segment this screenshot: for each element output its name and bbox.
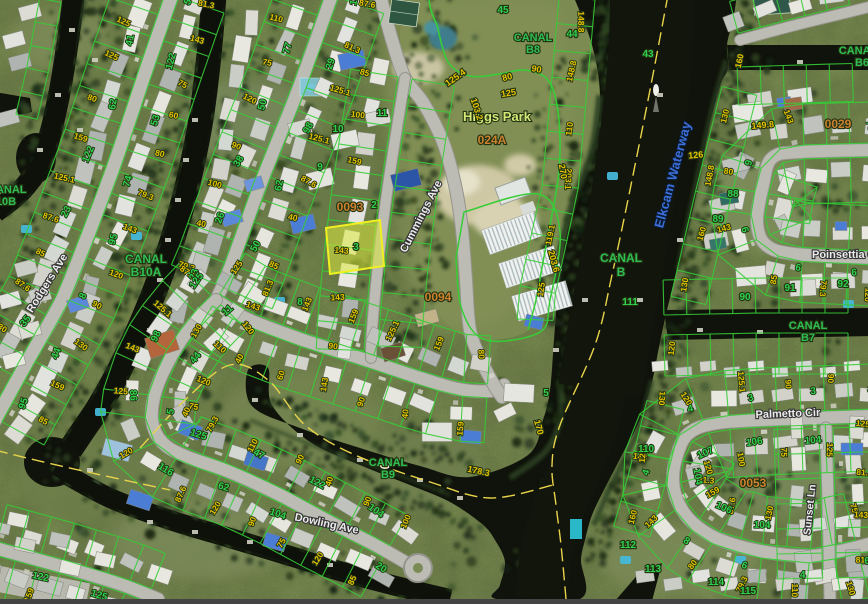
svg-text:6: 6 — [864, 556, 868, 568]
svg-text:90: 90 — [531, 63, 543, 75]
svg-text:80: 80 — [723, 166, 734, 177]
svg-text:0093: 0093 — [337, 200, 364, 214]
svg-text:112: 112 — [620, 540, 637, 551]
svg-text:90: 90 — [328, 340, 339, 351]
svg-text:113: 113 — [645, 564, 662, 575]
svg-text:3: 3 — [353, 242, 359, 253]
svg-text:130: 130 — [657, 391, 668, 406]
svg-text:CANAL: CANAL — [125, 252, 167, 266]
svg-text:75: 75 — [779, 447, 789, 457]
svg-text:2: 2 — [371, 200, 377, 211]
svg-text:B8: B8 — [526, 44, 540, 56]
svg-text:100: 100 — [350, 109, 366, 121]
svg-text:111: 111 — [622, 297, 638, 308]
svg-text:110: 110 — [638, 444, 655, 455]
svg-text:159: 159 — [454, 421, 465, 436]
svg-text:CANAL: CANAL — [0, 184, 27, 196]
svg-text:90: 90 — [783, 379, 793, 389]
svg-text:110: 110 — [563, 121, 575, 136]
svg-text:44: 44 — [566, 29, 578, 40]
svg-text:B6: B6 — [855, 57, 868, 69]
svg-text:143: 143 — [334, 245, 349, 256]
svg-text:80: 80 — [476, 349, 486, 359]
svg-text:148.8: 148.8 — [576, 11, 586, 33]
svg-text:104: 104 — [754, 520, 771, 531]
svg-text:B: B — [617, 265, 626, 279]
svg-text:CANAL: CANAL — [514, 32, 553, 44]
svg-text:126: 126 — [688, 149, 704, 160]
svg-text:125: 125 — [825, 443, 836, 458]
svg-text:120: 120 — [863, 288, 868, 303]
svg-text:86: 86 — [127, 390, 138, 402]
svg-text:8: 8 — [297, 297, 303, 308]
svg-text:B7: B7 — [801, 332, 815, 344]
svg-text:6: 6 — [851, 268, 857, 279]
svg-text:CANAL: CANAL — [839, 45, 868, 57]
svg-text:Palmetto Cir: Palmetto Cir — [755, 407, 821, 421]
svg-text:88: 88 — [727, 189, 739, 200]
svg-text:115: 115 — [740, 586, 757, 597]
svg-text:4: 4 — [800, 570, 806, 581]
svg-text:143: 143 — [854, 509, 868, 520]
svg-text:79.3: 79.3 — [818, 280, 829, 298]
svg-text:024A: 024A — [478, 133, 507, 147]
svg-text:91: 91 — [784, 283, 796, 294]
svg-text:B9: B9 — [381, 469, 395, 481]
svg-text:CANAL: CANAL — [600, 251, 642, 265]
svg-text:CANAL: CANAL — [789, 320, 828, 332]
svg-text:110: 110 — [790, 583, 801, 597]
svg-text:90: 90 — [739, 292, 751, 303]
svg-text:90: 90 — [826, 374, 836, 384]
svg-text:143: 143 — [330, 292, 345, 303]
svg-text:11: 11 — [377, 108, 388, 119]
svg-text:9: 9 — [317, 162, 323, 173]
svg-text:81.3: 81.3 — [856, 467, 868, 478]
svg-text:10: 10 — [332, 124, 344, 135]
svg-text:104: 104 — [804, 435, 822, 447]
svg-text:5: 5 — [543, 388, 549, 399]
svg-text:125.1: 125.1 — [736, 371, 748, 393]
svg-text:120: 120 — [666, 340, 678, 356]
svg-text:CANAL: CANAL — [369, 457, 408, 469]
svg-text:45: 45 — [497, 5, 509, 16]
svg-text:125: 125 — [855, 418, 868, 430]
svg-text:Poinsettia C: Poinsettia C — [812, 249, 868, 261]
svg-text:89: 89 — [712, 214, 724, 225]
svg-text:B10B: B10B — [0, 196, 16, 208]
svg-text:43: 43 — [642, 49, 654, 60]
svg-text:114: 114 — [708, 577, 725, 588]
svg-text:0094: 0094 — [425, 290, 452, 304]
svg-text:40: 40 — [399, 408, 410, 419]
svg-text:0029: 0029 — [825, 117, 852, 131]
svg-text:125: 125 — [535, 282, 547, 298]
svg-text:B10A: B10A — [131, 265, 162, 279]
svg-text:0053: 0053 — [740, 476, 767, 490]
svg-text:92: 92 — [837, 279, 849, 290]
svg-text:125: 125 — [113, 385, 128, 396]
svg-text:149.8: 149.8 — [751, 119, 774, 131]
